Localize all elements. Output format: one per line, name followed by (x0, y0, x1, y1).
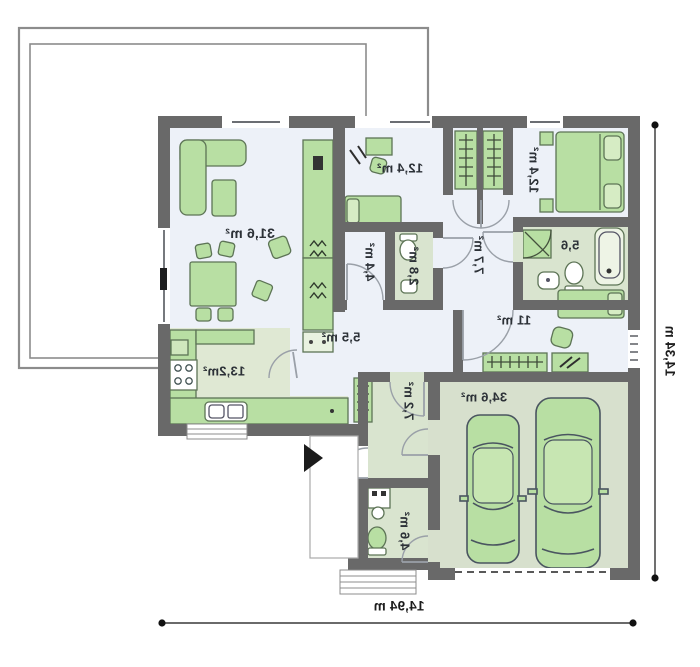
bed-single (345, 196, 401, 226)
room-label-garage: 34,6 m² (461, 390, 507, 405)
sideboard (303, 258, 333, 330)
chair (196, 308, 211, 321)
car-small (460, 415, 526, 563)
dimension-height-label: 14,34 m (663, 326, 678, 377)
tv-icon (313, 156, 323, 170)
steps-kitchen-side (187, 424, 247, 439)
shelf-with-pens (552, 353, 588, 372)
nightstand (540, 132, 553, 145)
chair (218, 308, 233, 321)
dining-table (190, 262, 236, 306)
shower-icon (523, 230, 551, 258)
room-label-utility: 4,6 m² (398, 512, 413, 551)
bathtub-icon (595, 228, 624, 285)
room-label-closet: 4,4 m² (363, 243, 378, 282)
hob-dot (330, 409, 334, 413)
room-label-corridor: 7,7 m² (472, 236, 487, 275)
fridge-icon (171, 340, 188, 355)
chair (218, 241, 236, 258)
room-label-hall: 5,5 m² (322, 330, 361, 345)
wardrobe-niche-right (483, 131, 505, 189)
wardrobe-room11 (483, 353, 547, 372)
toilet-icon (565, 262, 583, 294)
coffee-table (212, 180, 236, 216)
room-label-bathroom: 5,6 (561, 238, 580, 253)
window-bedroom-top (355, 116, 432, 128)
window-living-top (222, 116, 289, 128)
window-bedroom-right-top (527, 116, 563, 128)
bed-double (556, 132, 624, 212)
room-label-bedroom-top: 12,4 m² (377, 161, 423, 176)
chair (195, 243, 212, 259)
garage-door-opening (455, 568, 610, 580)
entry-porch (304, 436, 358, 558)
room-label-kitchen: 13,2m² (203, 364, 245, 379)
stove-icon (170, 360, 197, 390)
desk (366, 138, 392, 155)
kitchen-counter-top (196, 330, 254, 344)
utility-toilet-icon (368, 527, 386, 555)
floorplan-canvas: 31,6 m² 12,4 m² 12,4 m² 4,4 m² 2,8 m² 7,… (0, 0, 700, 667)
room-label-bedroom-side: 11 m² (497, 313, 531, 328)
steps-entry (340, 570, 416, 594)
room-label-bedroom-right: 12,4 m² (527, 147, 542, 193)
kitchen-sink-icon (205, 402, 247, 421)
room-label-wc-small: 2,8 m² (407, 247, 422, 286)
window-room11-right (628, 330, 640, 368)
wardrobe-niche-left (455, 131, 477, 189)
kitchen-counter-bottom (170, 398, 348, 424)
terrace-door-left (158, 228, 170, 324)
washbasin-icon (538, 272, 559, 289)
room-label-living: 31,6 m² (225, 225, 275, 241)
car-large (528, 398, 608, 568)
dimension-width-label: 14,94 m (374, 599, 425, 614)
room-label-entry-hall: 7,2 m² (402, 382, 417, 421)
nightstand (540, 199, 553, 212)
